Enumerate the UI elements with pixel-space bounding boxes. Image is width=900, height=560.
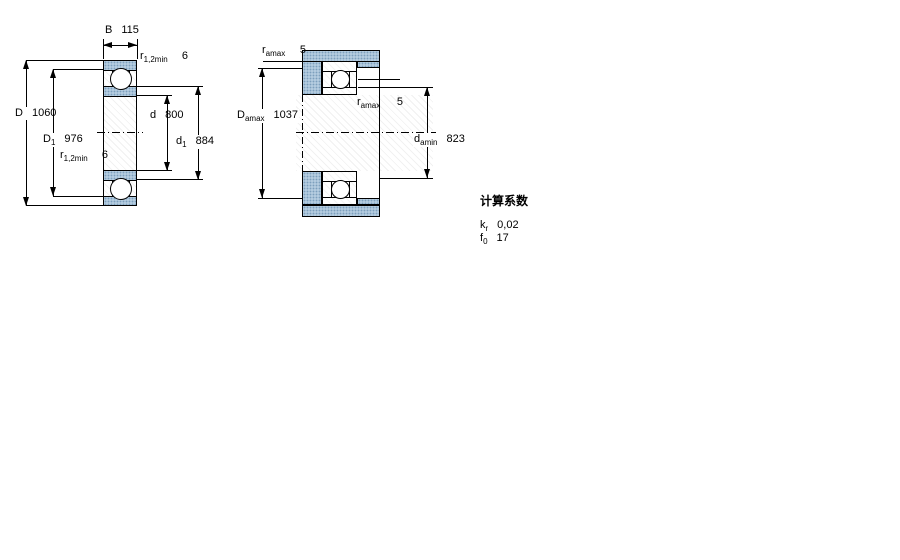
bearing-drawing-canvas: B115 r1,2min 6 r1,2min 6 D1060 D1976 d8 bbox=[0, 0, 900, 560]
factor-f0-subscript: 0 bbox=[483, 237, 487, 246]
dim-label-B: B115 bbox=[105, 24, 139, 37]
arrowhead-Da-top bbox=[259, 68, 265, 77]
dim-D1-value: 976 bbox=[64, 133, 82, 145]
factor-f0-row: f017 bbox=[480, 232, 509, 246]
factor-f0-symbol: f0 bbox=[480, 232, 488, 244]
factor-f0-value: 17 bbox=[497, 232, 509, 244]
shaft-hidden-edge-line bbox=[302, 95, 303, 171]
dim-label-r-bottom: r1,2min 6 bbox=[60, 149, 108, 163]
arrowhead-d1-top bbox=[195, 86, 201, 95]
arrowhead-da-top bbox=[424, 87, 430, 96]
ext-line-da-top bbox=[358, 87, 433, 88]
ext-line-da-bottom bbox=[380, 178, 433, 179]
arrowhead-D1-top bbox=[50, 69, 56, 78]
ext-line-d1-top bbox=[137, 86, 203, 87]
centerline-left-figure bbox=[97, 132, 143, 133]
dim-B-value: 115 bbox=[121, 24, 139, 36]
dim-label-r-top: r1,2min 6 bbox=[140, 50, 188, 64]
arrowhead-da-bottom bbox=[424, 169, 430, 178]
ball-bottom bbox=[110, 178, 132, 200]
arrowhead-d-top bbox=[164, 95, 170, 104]
arrowhead-D1-bottom bbox=[50, 187, 56, 196]
dim-line-D bbox=[26, 60, 27, 206]
dim-d1-symbol: d1 bbox=[176, 135, 187, 147]
dim-B-symbol: B bbox=[105, 24, 112, 36]
dim-D1-subscript: 1 bbox=[51, 138, 55, 147]
ext-line-D1-top bbox=[53, 69, 103, 70]
calculation-factors-title: 计算系数 bbox=[480, 195, 528, 208]
shoulder-right-top bbox=[357, 61, 380, 68]
dim-label-D: D1060 bbox=[14, 107, 57, 120]
dim-D1-symbol: D1 bbox=[43, 133, 55, 145]
arrowhead-B-left bbox=[103, 42, 112, 48]
dim-label-da: damin823 bbox=[413, 133, 466, 147]
arrowhead-D-bottom bbox=[23, 197, 29, 206]
dim-r-bottom-symbol: r1,2min bbox=[60, 149, 88, 163]
dim-label-ra-top: ramax 5 bbox=[262, 44, 306, 58]
dim-d-symbol: d bbox=[150, 109, 156, 121]
ext-line-B-right bbox=[137, 39, 138, 59]
arrowhead-D-top bbox=[23, 60, 29, 69]
ball-bottom bbox=[331, 180, 350, 199]
dim-r-top-symbol: r1,2min bbox=[140, 50, 168, 64]
dim-r-top-value: 6 bbox=[182, 50, 188, 64]
dim-ra-top-subscript: amax bbox=[266, 49, 286, 58]
dim-Da-symbol: Damax bbox=[237, 109, 265, 121]
dim-label-d1: d1884 bbox=[175, 135, 215, 149]
ext-line-d1-bottom bbox=[137, 179, 203, 180]
dim-ra-mid-value: 5 bbox=[397, 96, 403, 110]
ext-line-Da-bottom bbox=[258, 198, 302, 199]
ext-line-D-bottom bbox=[26, 205, 103, 206]
arrowhead-B-right bbox=[128, 42, 137, 48]
dim-line-d1 bbox=[198, 86, 199, 180]
dim-ra-top-symbol: ramax bbox=[262, 44, 285, 58]
dim-d1-subscript: 1 bbox=[182, 140, 186, 149]
dim-r-top-subscript: 1,2min bbox=[144, 55, 168, 64]
dim-line-d bbox=[167, 95, 168, 171]
dim-d-value: 800 bbox=[165, 109, 183, 121]
ext-line-D-top bbox=[26, 60, 103, 61]
dim-ra-mid-symbol: ramax bbox=[357, 96, 380, 110]
dim-Da-subscript: amax bbox=[245, 114, 265, 123]
ext-line-ra-top bbox=[263, 61, 302, 62]
dim-label-D1: D1976 bbox=[42, 133, 84, 147]
ball-top bbox=[331, 70, 350, 89]
dim-line-Da bbox=[262, 68, 263, 198]
dim-d1-value: 884 bbox=[196, 135, 214, 147]
ball-top bbox=[110, 68, 132, 90]
factor-kr-symbol: kr bbox=[480, 219, 488, 231]
dim-label-d: d800 bbox=[150, 109, 183, 122]
dim-r-bottom-subscript: 1,2min bbox=[64, 154, 88, 163]
housing-bottom-band bbox=[302, 205, 380, 217]
shoulder-left-bottom bbox=[302, 171, 322, 205]
dim-D-symbol: D bbox=[15, 107, 23, 119]
mounted-bearing-bottom bbox=[322, 171, 357, 205]
arrowhead-d-bottom bbox=[164, 162, 170, 171]
ext-line-D1-bottom bbox=[53, 196, 103, 197]
dim-da-value: 823 bbox=[446, 133, 464, 145]
arrowhead-Da-bottom bbox=[259, 189, 265, 198]
mounted-bearing-top bbox=[322, 61, 357, 95]
shoulder-left-top bbox=[302, 61, 322, 95]
dim-da-symbol: damin bbox=[414, 133, 437, 145]
bearing-section-body bbox=[103, 60, 137, 206]
dim-r-bottom-value: 6 bbox=[102, 149, 108, 163]
dim-Da-value: 1037 bbox=[274, 109, 298, 121]
dim-label-ra-mid: ramax 5 bbox=[357, 96, 403, 110]
factor-kr-value: 0,02 bbox=[497, 219, 518, 231]
dim-ra-mid-subscript: amax bbox=[361, 101, 381, 110]
dim-da-subscript: amin bbox=[420, 138, 437, 147]
dim-ra-top-value: 5 bbox=[300, 44, 306, 58]
arrowhead-d1-bottom bbox=[195, 171, 201, 180]
ref-line-ra-mid bbox=[358, 79, 400, 80]
dim-label-Da: Damax1037 bbox=[236, 109, 299, 123]
shoulder-right-bottom bbox=[357, 198, 380, 205]
